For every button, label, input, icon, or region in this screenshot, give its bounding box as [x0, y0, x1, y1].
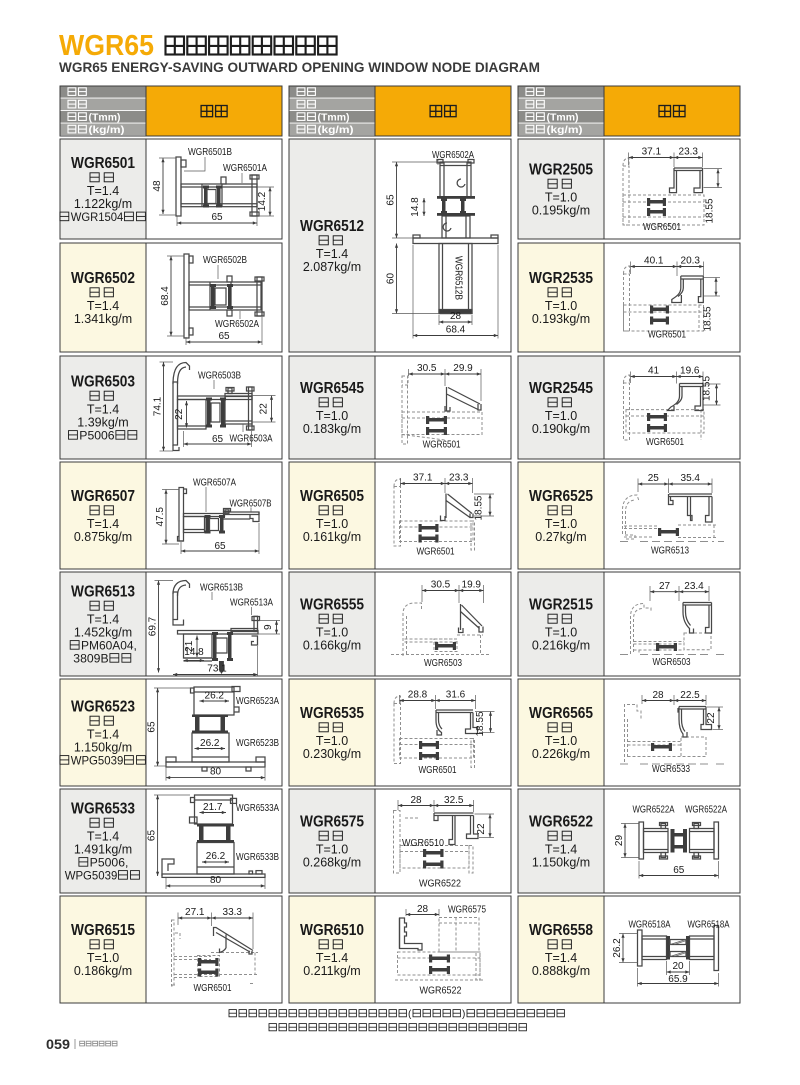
svg-text:T=1.4: T=1.4 — [87, 184, 119, 198]
svg-text:T=1.4: T=1.4 — [545, 951, 577, 965]
svg-text:68.4: 68.4 — [160, 286, 171, 306]
svg-text:T=1.4: T=1.4 — [87, 613, 119, 627]
svg-text:1.491kg/m: 1.491kg/m — [74, 843, 132, 857]
svg-text:65: 65 — [211, 212, 223, 223]
svg-text:29.9: 29.9 — [453, 363, 473, 374]
svg-text:T=1.4: T=1.4 — [87, 299, 119, 313]
svg-text:0.166kg/m: 0.166kg/m — [303, 639, 361, 653]
svg-text:WGR6535: WGR6535 — [300, 705, 364, 722]
svg-text:WGR6555: WGR6555 — [300, 597, 364, 614]
svg-text:WGR6518A: WGR6518A — [629, 919, 671, 931]
svg-text:WGR6503: WGR6503 — [71, 374, 135, 391]
svg-text:(Tmm): (Tmm) — [89, 112, 121, 124]
svg-text:WGR6502A: WGR6502A — [215, 318, 259, 330]
svg-text:WGR6518A: WGR6518A — [688, 919, 730, 931]
svg-text:T=1.0: T=1.0 — [316, 626, 348, 640]
svg-text:WGR6501: WGR6501 — [71, 155, 135, 172]
svg-text:WGR6501B: WGR6501B — [188, 146, 232, 158]
svg-text:0.216kg/m: 0.216kg/m — [532, 639, 590, 653]
svg-text:WGR6522: WGR6522 — [420, 985, 462, 997]
svg-text:28: 28 — [417, 904, 429, 915]
svg-text:0.268kg/m: 0.268kg/m — [303, 856, 361, 870]
svg-text:WGR65: WGR65 — [59, 30, 154, 62]
svg-text:65: 65 — [212, 434, 224, 445]
svg-text:25: 25 — [648, 473, 660, 484]
svg-text:19.6: 19.6 — [680, 366, 700, 377]
svg-text:23.3: 23.3 — [449, 473, 469, 484]
svg-text:T=1.4: T=1.4 — [87, 728, 119, 742]
svg-text:41: 41 — [648, 366, 660, 377]
svg-text:20.3: 20.3 — [681, 256, 701, 267]
svg-text:WGR6501: WGR6501 — [643, 221, 681, 233]
svg-text:T=1.0: T=1.0 — [545, 191, 577, 205]
svg-text:WGR6565: WGR6565 — [529, 705, 593, 722]
svg-text:0.193kg/m: 0.193kg/m — [532, 312, 590, 326]
svg-text:WGR6503: WGR6503 — [424, 657, 462, 669]
svg-text:80: 80 — [210, 767, 222, 778]
svg-text:14.2: 14.2 — [257, 191, 268, 211]
svg-text:WGR6522: WGR6522 — [529, 814, 593, 831]
svg-text:1.341kg/m: 1.341kg/m — [74, 312, 132, 326]
svg-text:27: 27 — [659, 581, 671, 592]
svg-text:WGR6522: WGR6522 — [419, 878, 461, 890]
svg-text:28: 28 — [450, 311, 462, 322]
svg-text:27.1: 27.1 — [185, 907, 205, 918]
svg-text:WGR2505: WGR2505 — [529, 162, 593, 179]
svg-text:WGR6558: WGR6558 — [529, 922, 593, 939]
svg-text:WGR2535: WGR2535 — [529, 270, 593, 287]
svg-text:22: 22 — [174, 408, 185, 420]
svg-text:WGR6575: WGR6575 — [448, 904, 486, 916]
svg-text:0.190kg/m: 0.190kg/m — [532, 422, 590, 436]
svg-text:T=1.0: T=1.0 — [545, 626, 577, 640]
svg-text:0.195kg/m: 0.195kg/m — [532, 204, 590, 218]
svg-text:WGR6501: WGR6501 — [648, 329, 686, 341]
svg-text:T=1.0: T=1.0 — [316, 517, 348, 531]
svg-text:WGR6522A: WGR6522A — [633, 804, 675, 816]
svg-text:WGR6502B: WGR6502B — [203, 254, 247, 266]
svg-text:WGR6507B: WGR6507B — [230, 497, 272, 509]
svg-text:18.55: 18.55 — [474, 495, 485, 520]
svg-text:WGR6503B: WGR6503B — [198, 370, 241, 382]
svg-text:WGR6523B: WGR6523B — [236, 737, 279, 749]
svg-text:T=1.0: T=1.0 — [545, 409, 577, 423]
svg-text:28: 28 — [652, 690, 664, 701]
svg-text:WGR6503: WGR6503 — [653, 656, 691, 668]
svg-text:47.5: 47.5 — [155, 507, 166, 527]
svg-text:35.4: 35.4 — [681, 473, 701, 484]
svg-text:2.087kg/m: 2.087kg/m — [303, 260, 361, 274]
svg-text:(Tmm): (Tmm) — [318, 112, 350, 124]
svg-text:1.150kg/m: 1.150kg/m — [74, 741, 132, 755]
svg-text:WGR6507: WGR6507 — [71, 488, 135, 505]
svg-text:28: 28 — [410, 795, 422, 806]
svg-text:T=1.0: T=1.0 — [316, 409, 348, 423]
svg-text:22: 22 — [706, 712, 717, 724]
svg-text:WGR6510: WGR6510 — [402, 837, 444, 849]
svg-text:1.452kg/m: 1.452kg/m — [74, 626, 132, 640]
svg-text:T=1.4: T=1.4 — [87, 403, 119, 417]
svg-text:WGR6523A: WGR6523A — [236, 695, 279, 707]
svg-text:18.55: 18.55 — [702, 376, 713, 401]
svg-text:WGR6513B: WGR6513B — [200, 582, 243, 594]
svg-text:): ) — [462, 1009, 465, 1020]
svg-text:1.39kg/m: 1.39kg/m — [77, 416, 128, 430]
svg-text:WGR6510: WGR6510 — [300, 922, 364, 939]
svg-text:WGR6513: WGR6513 — [651, 545, 689, 557]
svg-text:WGR6512: WGR6512 — [300, 218, 364, 235]
svg-text:T=1.0: T=1.0 — [87, 951, 119, 965]
svg-text:WGR2515: WGR2515 — [529, 597, 593, 614]
svg-text:32.5: 32.5 — [444, 795, 464, 806]
svg-text:22.5: 22.5 — [680, 690, 700, 701]
svg-text:WGR6522A: WGR6522A — [685, 804, 727, 816]
svg-text:0.27kg/m: 0.27kg/m — [535, 530, 586, 544]
svg-text:WGR6513: WGR6513 — [71, 584, 135, 601]
svg-text:18.55: 18.55 — [703, 306, 714, 331]
svg-text:0.183kg/m: 0.183kg/m — [303, 422, 361, 436]
svg-text:(Tmm): (Tmm) — [547, 112, 579, 124]
svg-text:T=1.4: T=1.4 — [545, 843, 577, 857]
svg-text:33.3: 33.3 — [223, 907, 243, 918]
svg-text:WGR6515: WGR6515 — [71, 922, 135, 939]
svg-text:WGR6545: WGR6545 — [300, 380, 364, 397]
svg-text:65: 65 — [147, 830, 158, 842]
svg-text:WGR65 ENERGY-SAVING OUTWARD OP: WGR65 ENERGY-SAVING OUTWARD OPENING WIND… — [59, 59, 540, 75]
svg-text:WGR6503A: WGR6503A — [230, 433, 273, 445]
svg-text:WGR6525: WGR6525 — [529, 488, 593, 505]
svg-text:WPG5039: WPG5039 — [71, 754, 124, 768]
svg-text:WGR6533: WGR6533 — [71, 801, 135, 818]
svg-text:(kg/m): (kg/m) — [89, 124, 125, 136]
svg-text:WGR1504: WGR1504 — [71, 210, 124, 224]
svg-text:WGR6505: WGR6505 — [300, 488, 364, 505]
svg-text:P5006,: P5006, — [90, 856, 129, 870]
svg-text:WGR2545: WGR2545 — [529, 380, 593, 397]
svg-text:T=1.0: T=1.0 — [316, 734, 348, 748]
svg-text:80: 80 — [210, 875, 222, 886]
svg-text:0.186kg/m: 0.186kg/m — [74, 964, 132, 978]
svg-text:9: 9 — [263, 624, 274, 630]
svg-text:0.161kg/m: 0.161kg/m — [303, 530, 361, 544]
svg-text:37.1: 37.1 — [642, 147, 662, 158]
svg-text:WGR6501: WGR6501 — [419, 764, 457, 776]
svg-text:WGR6533: WGR6533 — [652, 763, 690, 775]
svg-text:T=1.0: T=1.0 — [316, 843, 348, 857]
svg-text:22: 22 — [259, 403, 270, 415]
svg-text:T=1.4: T=1.4 — [316, 247, 348, 261]
svg-text:40.1: 40.1 — [644, 256, 664, 267]
svg-text:69.7: 69.7 — [148, 616, 159, 636]
svg-text:0.211kg/m: 0.211kg/m — [303, 964, 360, 978]
svg-text:WGR6533A: WGR6533A — [236, 802, 279, 814]
svg-text:65: 65 — [386, 194, 397, 206]
svg-text:WGR6513A: WGR6513A — [230, 597, 273, 609]
svg-text:74.1: 74.1 — [153, 396, 164, 416]
svg-text:65: 65 — [218, 331, 230, 342]
svg-text:WGR6523: WGR6523 — [71, 699, 135, 716]
svg-text:(kg/m): (kg/m) — [318, 124, 354, 136]
svg-text:WGR6501A: WGR6501A — [223, 162, 267, 174]
svg-text:WGR6501: WGR6501 — [646, 436, 684, 448]
svg-text:059: 059 — [46, 1036, 70, 1052]
svg-text:WGR6512B: WGR6512B — [453, 256, 465, 300]
svg-text:P5006: P5006 — [79, 429, 115, 443]
svg-text:23.4: 23.4 — [684, 581, 704, 592]
svg-text:T=1.0: T=1.0 — [545, 299, 577, 313]
svg-text:20: 20 — [672, 961, 684, 972]
svg-text:65: 65 — [147, 721, 158, 733]
svg-text:73.1: 73.1 — [207, 664, 227, 675]
svg-text:65: 65 — [673, 865, 685, 876]
svg-text:26.2: 26.2 — [206, 851, 226, 862]
svg-text:68.4: 68.4 — [446, 325, 466, 336]
svg-text:14.8: 14.8 — [410, 197, 421, 217]
svg-text:48: 48 — [152, 180, 163, 192]
svg-text:T=1.0: T=1.0 — [545, 517, 577, 531]
svg-text:PM60A04,: PM60A04, — [81, 639, 137, 653]
svg-text:30.5: 30.5 — [417, 363, 437, 374]
svg-text:0.226kg/m: 0.226kg/m — [532, 747, 590, 761]
svg-text:26.2: 26.2 — [205, 691, 225, 702]
svg-text:31.6: 31.6 — [446, 690, 466, 701]
svg-text:26.2: 26.2 — [200, 738, 220, 749]
svg-text:WGR6533B: WGR6533B — [236, 851, 279, 863]
svg-text:WGR6501: WGR6501 — [417, 546, 455, 558]
svg-text:60: 60 — [386, 273, 397, 285]
svg-text:28.8: 28.8 — [408, 690, 428, 701]
svg-text:37.1: 37.1 — [413, 473, 433, 484]
svg-text:29: 29 — [614, 835, 625, 847]
svg-text:23.3: 23.3 — [679, 147, 699, 158]
svg-text:T=1.4: T=1.4 — [87, 830, 119, 844]
svg-text:T=1.0: T=1.0 — [545, 734, 577, 748]
svg-text:26.2: 26.2 — [612, 938, 623, 958]
svg-text:WGR6502A: WGR6502A — [432, 149, 474, 161]
svg-text:19.9: 19.9 — [462, 580, 482, 591]
svg-text:30.5: 30.5 — [431, 580, 451, 591]
svg-text:T=1.4: T=1.4 — [87, 517, 119, 531]
svg-text:1.122kg/m: 1.122kg/m — [74, 197, 132, 211]
svg-text:0.230kg/m: 0.230kg/m — [303, 747, 361, 761]
svg-text:WGR6501: WGR6501 — [423, 439, 461, 451]
svg-text:22: 22 — [476, 823, 487, 835]
svg-text:1.150kg/m: 1.150kg/m — [532, 856, 590, 870]
svg-text:18.55: 18.55 — [705, 198, 716, 223]
svg-text:WGR6507A: WGR6507A — [193, 477, 236, 489]
svg-text:3809B: 3809B — [73, 652, 108, 666]
svg-text:WGR6502: WGR6502 — [71, 270, 135, 287]
svg-text:WPG5039: WPG5039 — [65, 869, 118, 883]
svg-text:T=1.4: T=1.4 — [316, 951, 348, 965]
svg-text:0.875kg/m: 0.875kg/m — [74, 530, 132, 544]
svg-text:21.7: 21.7 — [203, 802, 223, 813]
svg-text:0.888kg/m: 0.888kg/m — [532, 964, 590, 978]
svg-text:(kg/m): (kg/m) — [547, 124, 583, 136]
svg-text:14.8: 14.8 — [184, 647, 204, 658]
svg-text:65: 65 — [214, 541, 226, 552]
svg-text:WGR6575: WGR6575 — [300, 814, 364, 831]
svg-text:65.9: 65.9 — [668, 974, 688, 985]
svg-text:WGR6501: WGR6501 — [194, 982, 232, 994]
